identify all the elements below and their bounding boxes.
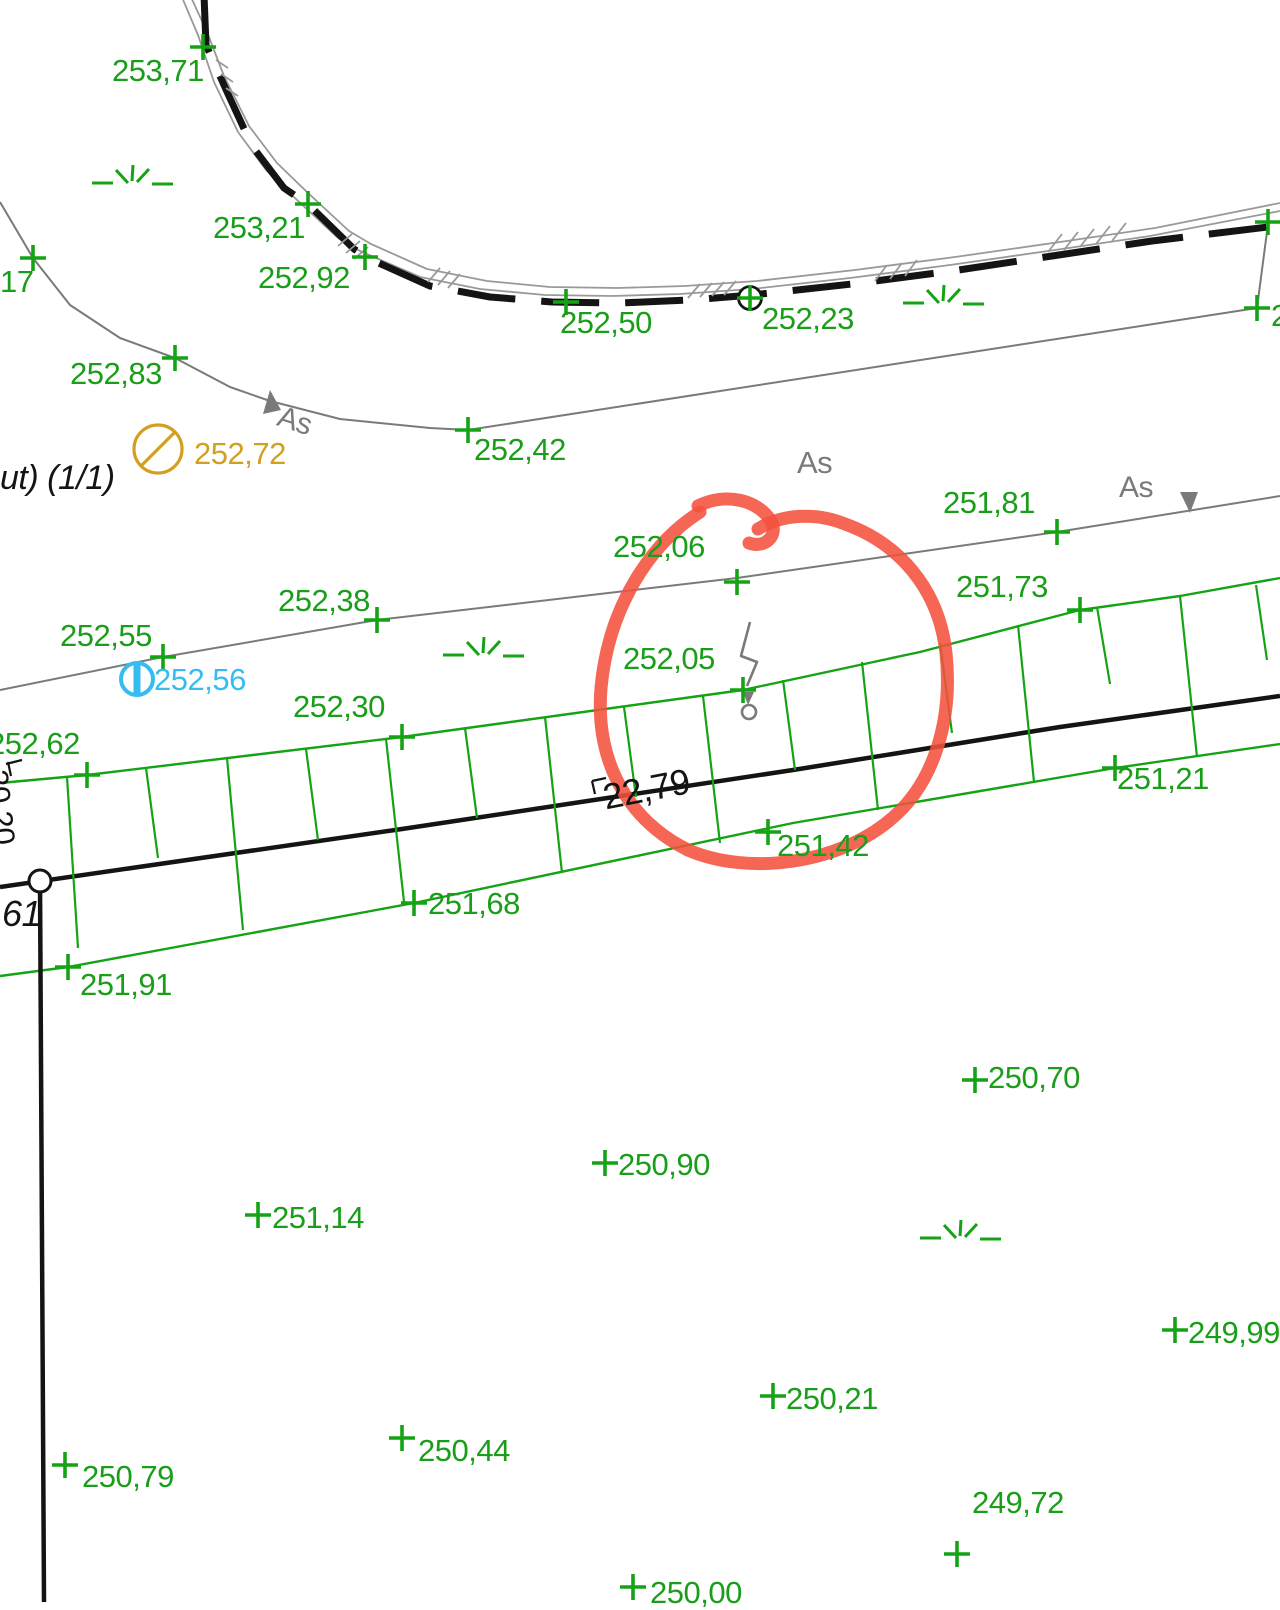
dim-ticks — [592, 781, 595, 794]
elevation-label: 250,00 — [650, 1577, 742, 1608]
grass-symbol-3 — [948, 289, 960, 302]
lamp-base-circle — [742, 705, 756, 719]
elevation-label: 249,72 — [972, 1487, 1064, 1518]
text-annotation: As — [797, 447, 832, 478]
slope-ticks — [1256, 585, 1267, 660]
slope-ticks — [465, 728, 477, 818]
slope-ticks — [862, 662, 878, 810]
elevation-label: 252,55 — [60, 620, 152, 651]
grass-symbol-1 — [137, 169, 149, 182]
grass-symbol-2 — [467, 642, 479, 655]
elevation-label: 251,73 — [956, 571, 1048, 602]
elevation-label: 251,14 — [272, 1202, 364, 1233]
elevation-label: 252,05 — [623, 643, 715, 674]
slope-ticks — [227, 758, 243, 930]
elevation-label: 61 — [2, 896, 41, 932]
elevation-label: 250,21 — [786, 1383, 878, 1414]
no-entry-slash — [141, 432, 175, 466]
elevation-label: 251,42 — [777, 830, 869, 861]
grass-symbol-4 — [944, 1225, 956, 1238]
elevation-label: 249,99 — [1188, 1317, 1280, 1348]
slope-ticks — [306, 749, 318, 840]
slope-ticks — [703, 696, 720, 843]
road-hatch — [448, 274, 460, 288]
grass-symbol-4 — [960, 1220, 961, 1236]
elevation-label: 252,83 — [70, 358, 162, 389]
elevation-label: 252,72 — [194, 438, 286, 469]
slope-ticks — [386, 739, 404, 902]
slope-ticks — [1018, 625, 1034, 782]
slope-ticks — [67, 777, 78, 948]
grass-symbol-1 — [116, 170, 128, 183]
grass-symbol-1 — [132, 165, 133, 181]
as-arrow-up — [263, 390, 281, 414]
elevation-label: 252,06 — [613, 531, 705, 562]
elevation-label: 252,62 — [0, 728, 80, 759]
grass-symbol-3 — [927, 290, 939, 303]
elevation-label: 250,90 — [618, 1149, 710, 1180]
boundary-vertical — [40, 881, 44, 1602]
elevation-label: 253,71 — [112, 55, 204, 86]
junction-circle — [29, 870, 51, 892]
lamp-zigzag — [741, 622, 757, 686]
elevation-label: 17 — [0, 266, 33, 297]
elevation-label: 252,50 — [560, 307, 652, 338]
road-hatch — [216, 60, 228, 68]
elevation-label: 251,21 — [1117, 763, 1209, 794]
grass-symbol-3 — [943, 285, 944, 301]
elevation-label: 250,70 — [988, 1062, 1080, 1093]
slope-ticks — [1180, 596, 1197, 757]
elevation-label: 252,92 — [258, 262, 350, 293]
red-marker-annotation — [600, 512, 947, 864]
elevation-label: 251,68 — [428, 888, 520, 919]
slope-ticks — [545, 717, 562, 873]
text-annotation: ut) (1/1) — [0, 461, 115, 495]
road-curb-inner — [181, 0, 1280, 296]
elevation-label: 252,30 — [293, 691, 385, 722]
elevation-label: 251,81 — [943, 487, 1035, 518]
slope-ticks — [783, 680, 795, 770]
grass-symbol-2 — [483, 637, 484, 653]
elevation-label: 253,21 — [213, 212, 305, 243]
elevation-label: 250,44 — [418, 1435, 510, 1466]
text-annotation: As — [1119, 473, 1153, 503]
grass-symbol-2 — [488, 641, 500, 654]
elevation-label: 250,79 — [82, 1461, 174, 1492]
elevation-label: 252,23 — [762, 303, 854, 334]
elevation-label: 252,56 — [154, 664, 246, 695]
elevation-label: 252,42 — [474, 434, 566, 465]
grass-symbol-4 — [965, 1224, 977, 1237]
elevation-label: 251,91 — [80, 969, 172, 1000]
slope-ticks — [1097, 607, 1110, 684]
elevation-label: 252,38 — [278, 585, 370, 616]
survey-map-canvas: 253,7117253,21252,92252,50252,23252,8325… — [0, 0, 1280, 1602]
elevation-label: 2 — [1271, 300, 1280, 331]
slope-ticks — [146, 768, 158, 858]
